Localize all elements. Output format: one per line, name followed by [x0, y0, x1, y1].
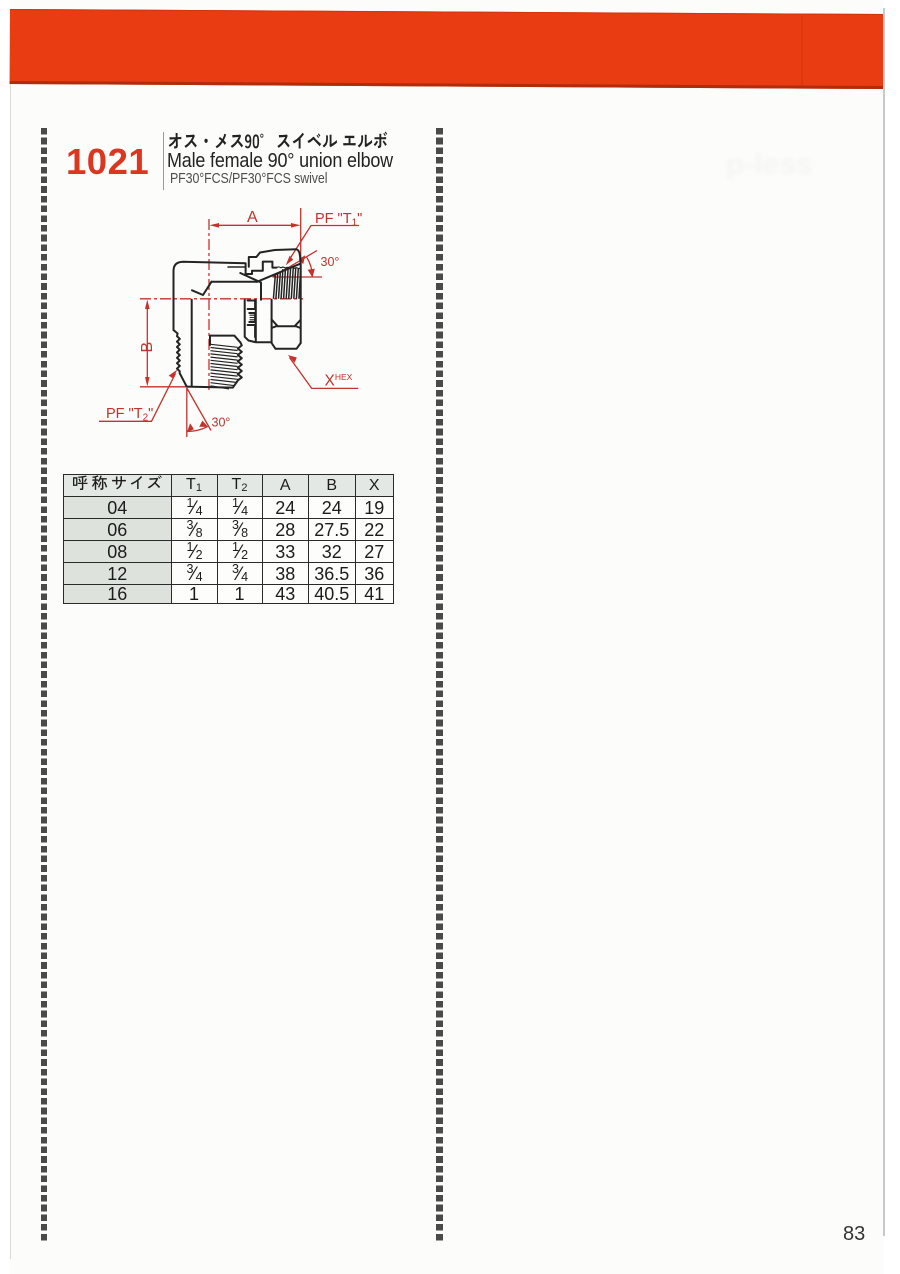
svg-text:PF "T2": PF "T2" — [106, 406, 153, 424]
svg-text:PF "T1": PF "T1" — [315, 211, 362, 229]
svg-text:XHEX: XHEX — [325, 372, 353, 390]
svg-text:A: A — [247, 209, 258, 226]
svg-text:30°: 30° — [321, 255, 340, 269]
svg-text:B: B — [139, 342, 156, 353]
svg-text:30°: 30° — [212, 416, 231, 430]
